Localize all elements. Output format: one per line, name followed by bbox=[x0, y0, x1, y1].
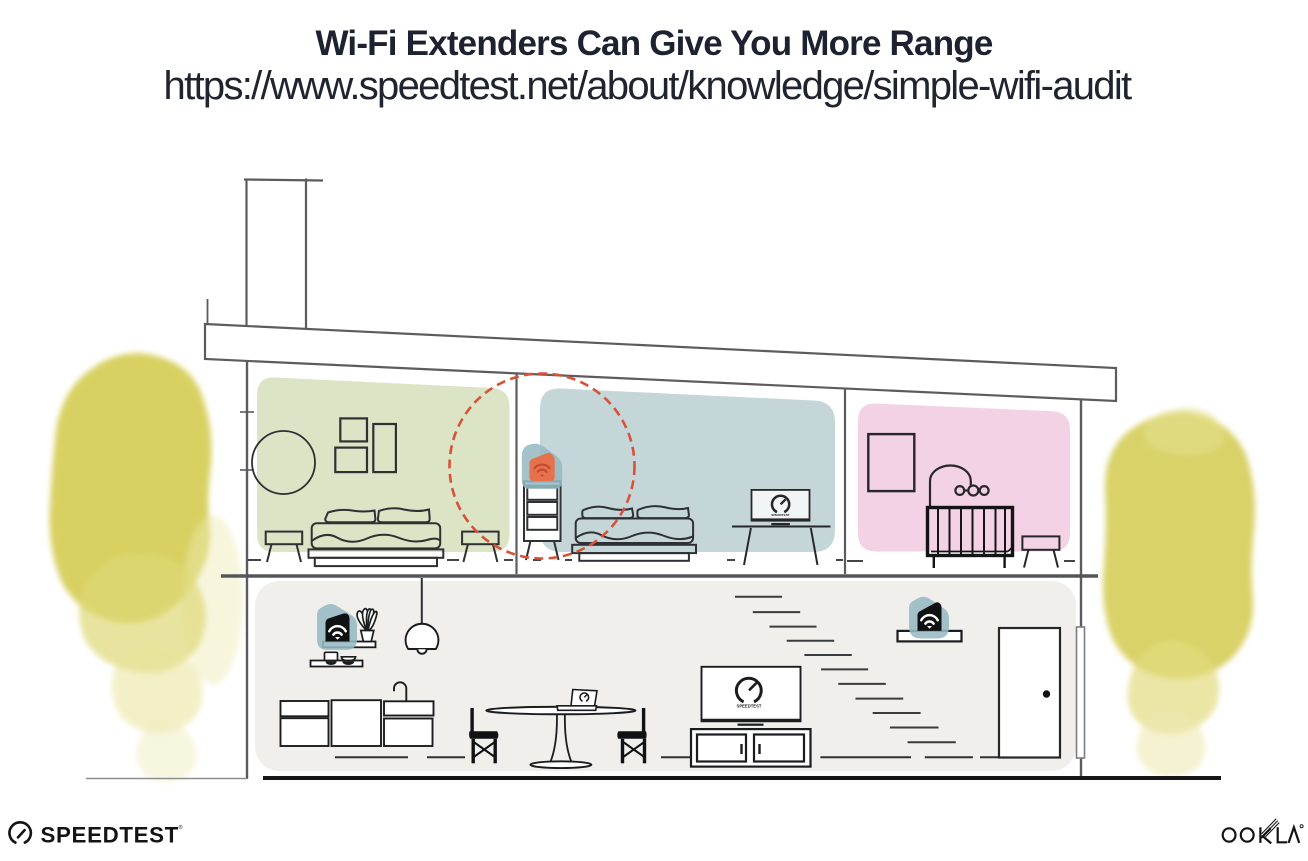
svg-text:SPEEDTEST: SPEEDTEST bbox=[737, 704, 762, 709]
svg-text:SPEEDTEST: SPEEDTEST bbox=[771, 513, 790, 517]
svg-text:SPEEDTEST: SPEEDTEST bbox=[41, 823, 179, 848]
svg-text:®: ® bbox=[179, 824, 183, 831]
